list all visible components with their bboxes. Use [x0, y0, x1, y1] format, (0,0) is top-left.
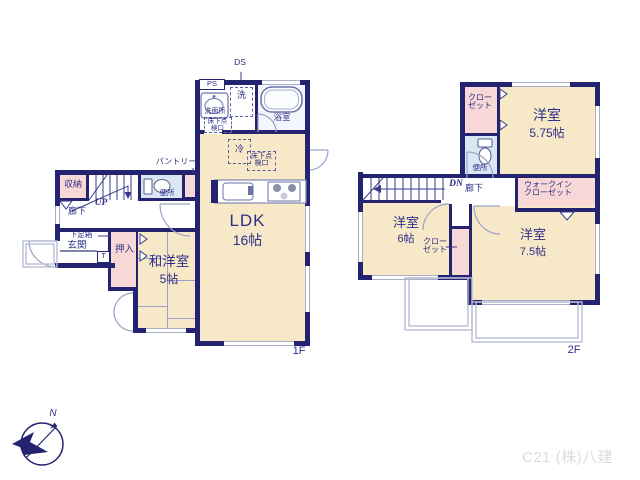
label-bedroom-6: 洋室: [381, 216, 431, 230]
label-bedroom-75: 洋室: [503, 228, 563, 242]
stairs-down-icon: [363, 178, 445, 200]
label-closet-a: クローゼット: [467, 94, 493, 111]
label-toilet-2f: 便所: [465, 164, 495, 172]
label-tile: T: [97, 252, 110, 260]
balcony-right: [472, 302, 582, 342]
label-floor-1f: 1F: [287, 346, 311, 358]
label-hatch-ldk: 床下点検口: [250, 153, 273, 168]
label-floor-2f: 2F: [562, 345, 586, 357]
compass-north-label: N: [46, 409, 60, 420]
toilet-icon-2f: [478, 139, 492, 164]
label-closet-b: クローゼット: [422, 238, 448, 255]
label-bedroom-575: 洋室: [512, 108, 582, 123]
label-washroom: 洗面所: [199, 108, 231, 115]
door-chevrons: [60, 89, 574, 261]
kitchen-counter-icon: [211, 180, 306, 203]
balcony-left: [405, 278, 472, 330]
label-japanese-room-size: 5帖: [141, 273, 197, 286]
label-walkin-closet: ウォークインクローゼット: [522, 181, 574, 198]
label-storage: 収納: [59, 180, 87, 189]
label-shoebox: 下足箱: [64, 231, 98, 239]
label-hatch-washroom: 床下点検口: [206, 119, 229, 133]
label-ldk: LDK: [215, 212, 280, 230]
bathtub-icon: [261, 87, 302, 112]
label-ldk-size: 16帖: [215, 233, 280, 248]
entrance-porch: [23, 241, 57, 267]
label-oshiire: 押入: [111, 245, 138, 255]
credit-watermark: C21 (株)八建: [522, 446, 638, 467]
label-pantry: パントリー: [155, 158, 197, 166]
label-washer: 洗: [235, 91, 248, 100]
label-ps: PS: [199, 80, 225, 88]
label-japanese-room: 和洋室: [141, 255, 197, 269]
label-fridge: 冷: [233, 145, 246, 154]
label-bedroom-575-size: 5.75帖: [512, 127, 582, 140]
label-hall-1f: 廊下: [62, 207, 92, 216]
floor-plan-canvas: DS PS 洗 洗面所 床下点検口 浴室 冷 床下点検口 パントリー 収納 便所…: [0, 0, 640, 480]
label-bedroom-75-size: 7.5帖: [503, 247, 563, 259]
label-ds: DS: [230, 58, 250, 67]
label-hall-2f: 廊下: [461, 184, 487, 193]
label-bath: 浴室: [263, 113, 301, 122]
label-entrance: 玄関: [62, 241, 92, 251]
label-toilet-1f: 便所: [152, 189, 182, 197]
compass-rose: [12, 423, 63, 466]
